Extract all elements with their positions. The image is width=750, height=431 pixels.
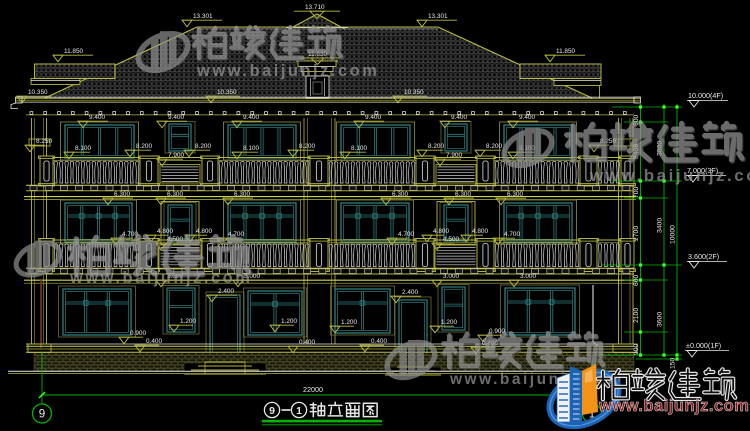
- svg-text:13.301: 13.301: [428, 13, 448, 20]
- svg-text:1.200: 1.200: [281, 318, 297, 325]
- svg-text:±0.000(1F): ±0.000(1F): [686, 341, 721, 350]
- svg-text:1: 1: [296, 405, 302, 417]
- svg-text:2.400: 2.400: [402, 289, 418, 296]
- svg-text:4.500: 4.500: [443, 236, 459, 243]
- svg-text:2.400: 2.400: [218, 288, 234, 295]
- svg-text:9: 9: [269, 405, 275, 417]
- svg-text:10000: 10000: [670, 225, 677, 244]
- svg-text:22000: 22000: [303, 385, 323, 394]
- svg-text:6.300: 6.300: [167, 191, 183, 198]
- svg-text:10.350: 10.350: [28, 89, 48, 96]
- svg-text:6.300: 6.300: [234, 191, 250, 198]
- svg-text:11.850: 11.850: [556, 48, 576, 55]
- svg-text:1.200: 1.200: [341, 319, 357, 326]
- svg-text:0.400: 0.400: [299, 339, 315, 346]
- svg-text:www.baijunjz.com: www.baijunjz.com: [598, 397, 749, 415]
- svg-text:4.800: 4.800: [157, 228, 173, 235]
- svg-text:10.350: 10.350: [404, 89, 424, 96]
- svg-text:8.100: 8.100: [351, 145, 367, 152]
- svg-text:9.400: 9.400: [89, 114, 105, 121]
- svg-text:4.800: 4.800: [472, 228, 488, 235]
- svg-text:6.300: 6.300: [455, 191, 471, 198]
- svg-text:4.700: 4.700: [398, 231, 414, 238]
- svg-text:8.100: 8.100: [75, 145, 91, 152]
- svg-text:7.900: 7.900: [168, 152, 184, 159]
- svg-text:9: 9: [39, 409, 45, 421]
- svg-text:9.400: 9.400: [365, 114, 381, 121]
- svg-text:13.710: 13.710: [305, 4, 325, 11]
- svg-text:11.850: 11.850: [64, 48, 84, 55]
- svg-text:9.400: 9.400: [519, 114, 535, 121]
- svg-text:3600: 3600: [657, 312, 664, 327]
- svg-text:6.300: 6.300: [392, 191, 408, 198]
- svg-text:3.600(2F): 3.600(2F): [688, 252, 719, 261]
- svg-text:600: 600: [633, 274, 640, 286]
- svg-text:1.200: 1.200: [441, 319, 457, 326]
- svg-text:8.200: 8.200: [428, 143, 444, 150]
- svg-text:3.000: 3.000: [520, 273, 536, 280]
- svg-text:8.200: 8.200: [195, 143, 211, 150]
- svg-text:6.300: 6.300: [507, 191, 523, 198]
- svg-text:3400: 3400: [657, 218, 664, 233]
- svg-text:8.250: 8.250: [36, 138, 52, 145]
- svg-text:6.300: 6.300: [114, 191, 130, 198]
- svg-text:10.350: 10.350: [217, 89, 237, 96]
- svg-text:0.900: 0.900: [130, 330, 146, 337]
- svg-text:9.400: 9.400: [168, 114, 184, 121]
- svg-text:1.200: 1.200: [180, 318, 196, 325]
- svg-text:2700: 2700: [633, 226, 640, 241]
- svg-text:8.100: 8.100: [243, 145, 259, 152]
- svg-text:www.baijunjz.com: www.baijunjz.com: [69, 269, 252, 287]
- svg-text:0.400: 0.400: [146, 338, 162, 345]
- svg-text:www.baijunjz.com: www.baijunjz.com: [196, 62, 379, 80]
- svg-text:900: 900: [633, 343, 640, 355]
- svg-text:9.400: 9.400: [243, 114, 259, 121]
- svg-text:4.800: 4.800: [196, 228, 212, 235]
- svg-text:9.400: 9.400: [451, 114, 467, 121]
- svg-text:0.400: 0.400: [371, 338, 387, 345]
- svg-text:700: 700: [633, 186, 640, 198]
- svg-text:13.301: 13.301: [193, 13, 213, 20]
- svg-text:8.200: 8.200: [299, 143, 315, 150]
- svg-text:7.900: 7.900: [446, 152, 462, 159]
- svg-text:8.200: 8.200: [136, 143, 152, 150]
- svg-text:2100: 2100: [633, 308, 640, 323]
- svg-text:3.000: 3.000: [443, 273, 459, 280]
- svg-text:10.000(4F): 10.000(4F): [688, 91, 723, 100]
- svg-text:www.baijunjz.com: www.baijunjz.com: [589, 166, 750, 185]
- svg-text:8.200: 8.200: [486, 143, 502, 150]
- svg-text:4.800: 4.800: [433, 228, 449, 235]
- svg-text:150: 150: [670, 357, 677, 369]
- svg-text:4.700: 4.700: [504, 231, 520, 238]
